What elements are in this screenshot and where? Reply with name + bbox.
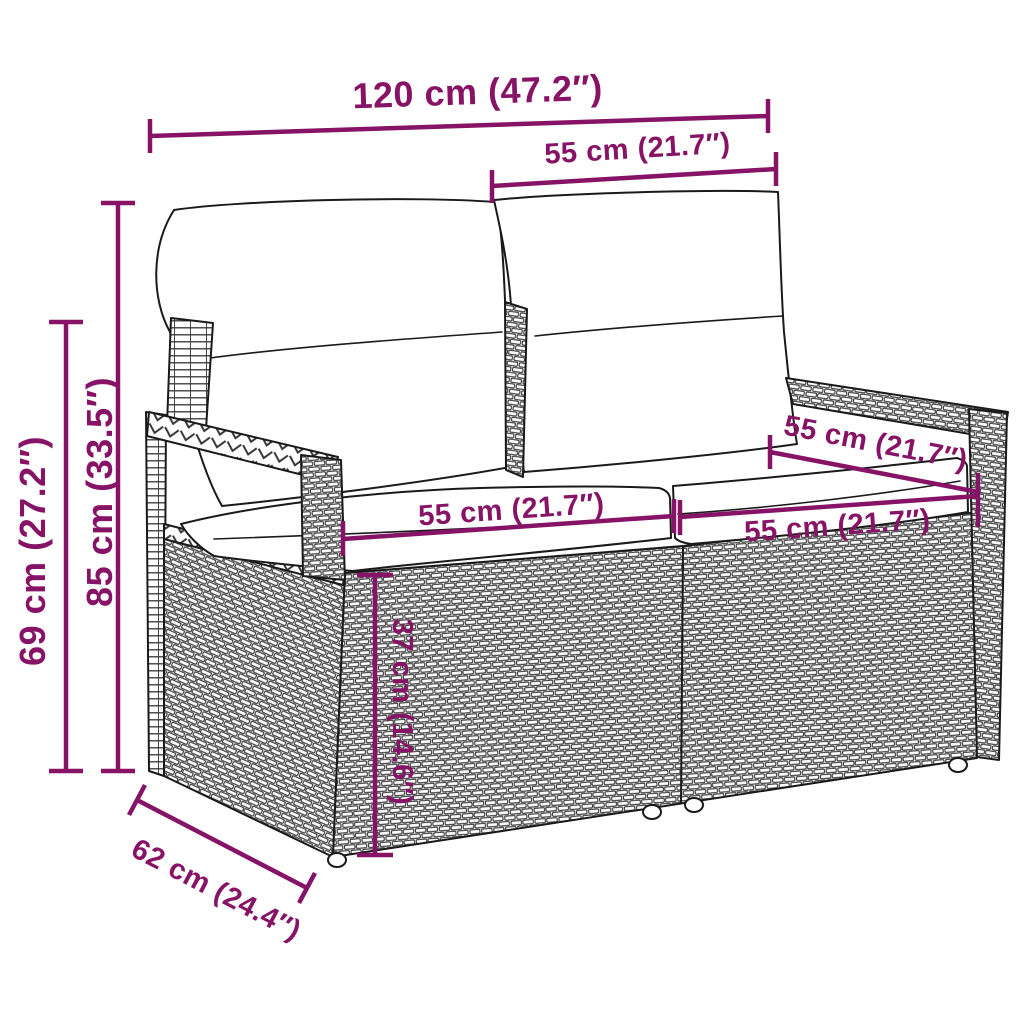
- dim-line-arm-height: [49, 322, 83, 771]
- sofa-foot: [328, 853, 346, 867]
- left-armrest-front-post: [301, 455, 345, 580]
- back-cushion-right: [494, 191, 797, 472]
- left-armrest-back-post: [167, 318, 213, 429]
- dim-label-overall-width: 120 cm (47.2″): [352, 67, 604, 117]
- dim-label-total-height: 85 cm (33.5″): [79, 377, 120, 607]
- dim-label-back-cushion-width: 55 cm (21.7″): [543, 127, 731, 170]
- sofa-foot: [685, 798, 703, 812]
- dim-label-base-height: 37 cm (14.6″): [386, 619, 418, 805]
- backrest-center-wicker-strip: [505, 302, 527, 477]
- product-dimension-diagram: 120 cm (47.2″) 55 cm (21.7″) 85 cm (33.5…: [0, 0, 1024, 1024]
- sofa-foot: [643, 805, 661, 819]
- sofa-foot: [949, 758, 967, 772]
- sofa-dimension-drawing: 120 cm (47.2″) 55 cm (21.7″) 85 cm (33.5…: [0, 0, 1024, 1024]
- dim-label-overall-depth: 62 cm (24.4″): [126, 833, 306, 947]
- dim-label-arm-height: 69 cm (27.2″): [12, 436, 53, 666]
